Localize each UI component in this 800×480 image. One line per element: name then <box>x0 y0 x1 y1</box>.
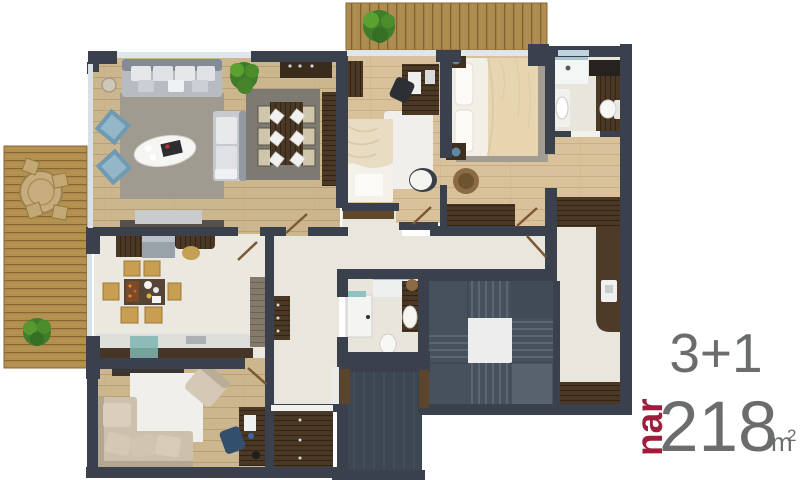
svg-text:3+1: 3+1 <box>669 322 762 384</box>
svg-text:2: 2 <box>787 426 796 445</box>
svg-text:218: 218 <box>659 388 777 467</box>
